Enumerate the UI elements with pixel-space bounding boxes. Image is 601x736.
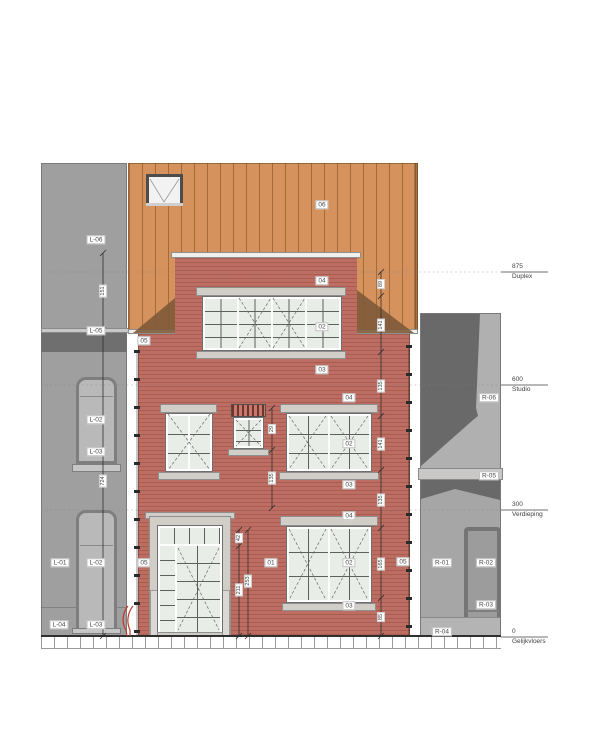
dim-mid-spacing: 135 <box>268 471 276 484</box>
tag-right-01: R-01 <box>432 558 452 567</box>
tag-ground-window: 02 <box>342 558 355 567</box>
tag-left-02-lower: L-02 <box>86 558 105 567</box>
tag-dormer-lintel: 04 <box>315 276 328 285</box>
tag-entrance-door: 01 <box>264 558 277 567</box>
dim-right-1: 89 <box>377 279 385 289</box>
right-neighbor-roof-shadow <box>421 314 480 466</box>
level-marker-lines <box>501 272 548 637</box>
dim-right-2: 141 <box>377 318 385 331</box>
level-ground-value: 0 <box>512 629 516 636</box>
tag-studio-lintel: 04 <box>342 393 355 402</box>
tag-dormer-sill: 03 <box>315 365 328 374</box>
dim-door-total: 253 <box>244 574 252 587</box>
dim-left-top: 151 <box>99 284 107 297</box>
level-verdieping-value: 300 <box>512 502 523 509</box>
dim-door-leaf: 211 <box>235 584 243 597</box>
tag-right-02: R-02 <box>476 558 496 567</box>
dim-right-4: 141 <box>377 437 385 450</box>
red-pipe-detail <box>123 606 133 636</box>
tag-right-04: R-04 <box>432 627 452 636</box>
dim-left-total: 724 <box>99 474 107 487</box>
tag-left-01: L-01 <box>50 558 69 567</box>
level-ground-label: Gelijkvloers <box>512 639 546 646</box>
level-studio-value: 600 <box>512 377 523 384</box>
tag-roof: 06 <box>315 200 328 209</box>
tag-left-06: L-06 <box>86 235 105 244</box>
tag-studio-window: 02 <box>342 439 355 448</box>
tag-right-05: R-05 <box>479 471 499 480</box>
dim-mid-vent: 29 <box>268 424 276 434</box>
dim-right-5: 135 <box>377 493 385 506</box>
dim-door-transom: 42 <box>235 533 243 543</box>
tag-right-06: R-06 <box>479 393 499 402</box>
tag-studio-sill: 03 <box>342 480 355 489</box>
tag-trim-top-left: 05 <box>137 336 150 345</box>
elevation-sheet: 06 04 02 03 05 05 05 04 02 03 04 02 03 0… <box>0 0 601 736</box>
tag-right-03: R-03 <box>476 600 496 609</box>
level-verdieping-label: Verdieping <box>512 512 543 519</box>
roof-shadow-right <box>357 290 414 333</box>
dim-right-6: 165 <box>377 557 385 570</box>
tag-ground-lintel: 04 <box>342 511 355 520</box>
tag-trim-bottom-right: 05 <box>396 557 409 566</box>
casement-opening-lines <box>168 298 368 630</box>
level-studio-label: Studio <box>512 387 530 394</box>
tag-dormer-window: 02 <box>315 322 328 331</box>
right-neighbor-cornice-shadow <box>421 480 500 500</box>
roof-window-glazing-lines <box>150 179 179 202</box>
tag-left-02-upper: L-02 <box>86 415 105 424</box>
dim-right-3: 135 <box>377 379 385 392</box>
tag-left-03-upper: L-03 <box>86 447 105 456</box>
roof-shadow-left <box>133 298 175 333</box>
dim-right-7: 85 <box>377 612 385 622</box>
tag-ground-sill: 03 <box>342 601 355 610</box>
level-duplex-value: 875 <box>512 264 523 271</box>
tag-left-05: L-05 <box>86 326 105 335</box>
tag-left-04: L-04 <box>49 620 68 629</box>
tag-left-03-lower: L-03 <box>86 620 105 629</box>
tag-trim-bottom-left: 05 <box>137 558 150 567</box>
level-duplex-label: Duplex <box>512 274 532 281</box>
